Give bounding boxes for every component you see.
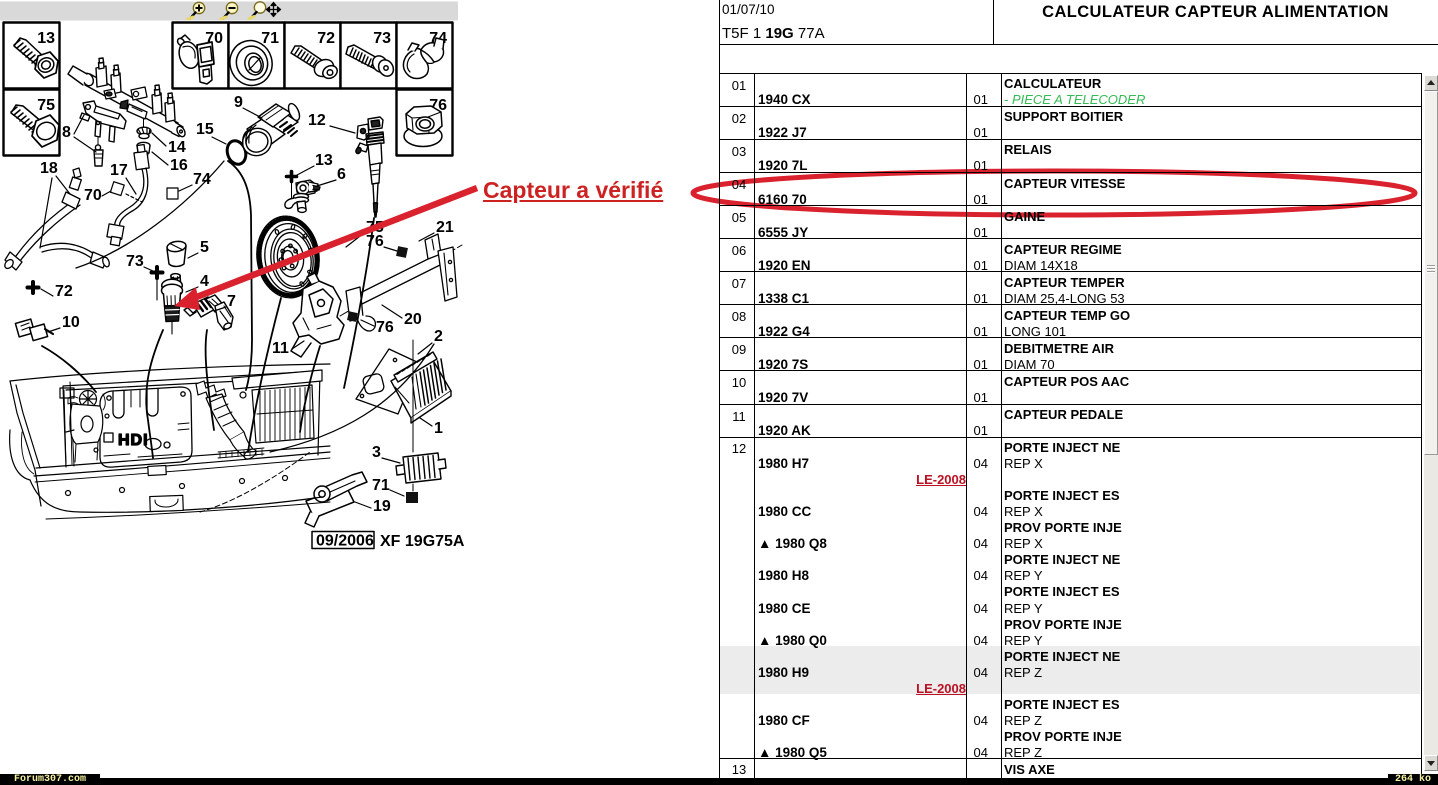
svg-text:18: 18 [40, 160, 58, 177]
svg-text:16: 16 [170, 157, 188, 174]
svg-text:71: 71 [261, 30, 279, 47]
svg-text:72: 72 [317, 30, 335, 47]
svg-text:13: 13 [37, 30, 55, 47]
svg-text:2: 2 [434, 328, 443, 345]
svg-text:70: 70 [84, 187, 102, 204]
svg-text:8: 8 [62, 124, 71, 141]
svg-text:71: 71 [372, 477, 390, 494]
svg-text:15: 15 [196, 121, 214, 138]
svg-text:10: 10 [62, 314, 80, 331]
svg-text:HDI: HDI [118, 432, 149, 449]
svg-text:9: 9 [234, 94, 243, 111]
svg-text:1: 1 [434, 420, 443, 437]
svg-text:14: 14 [168, 139, 186, 156]
svg-text:75: 75 [37, 97, 55, 114]
svg-text:19: 19 [373, 498, 391, 515]
svg-text:11: 11 [272, 340, 289, 357]
svg-text:XF 19G75A: XF 19G75A [380, 533, 465, 550]
svg-text:09/2006: 09/2006 [316, 533, 374, 550]
svg-text:73: 73 [373, 30, 391, 47]
svg-text:12: 12 [308, 112, 326, 129]
svg-text:17: 17 [110, 162, 128, 179]
svg-text:3: 3 [372, 444, 381, 461]
svg-text:72: 72 [55, 283, 73, 300]
svg-text:76: 76 [376, 319, 394, 336]
svg-text:13: 13 [315, 152, 333, 169]
svg-text:73: 73 [126, 253, 144, 270]
